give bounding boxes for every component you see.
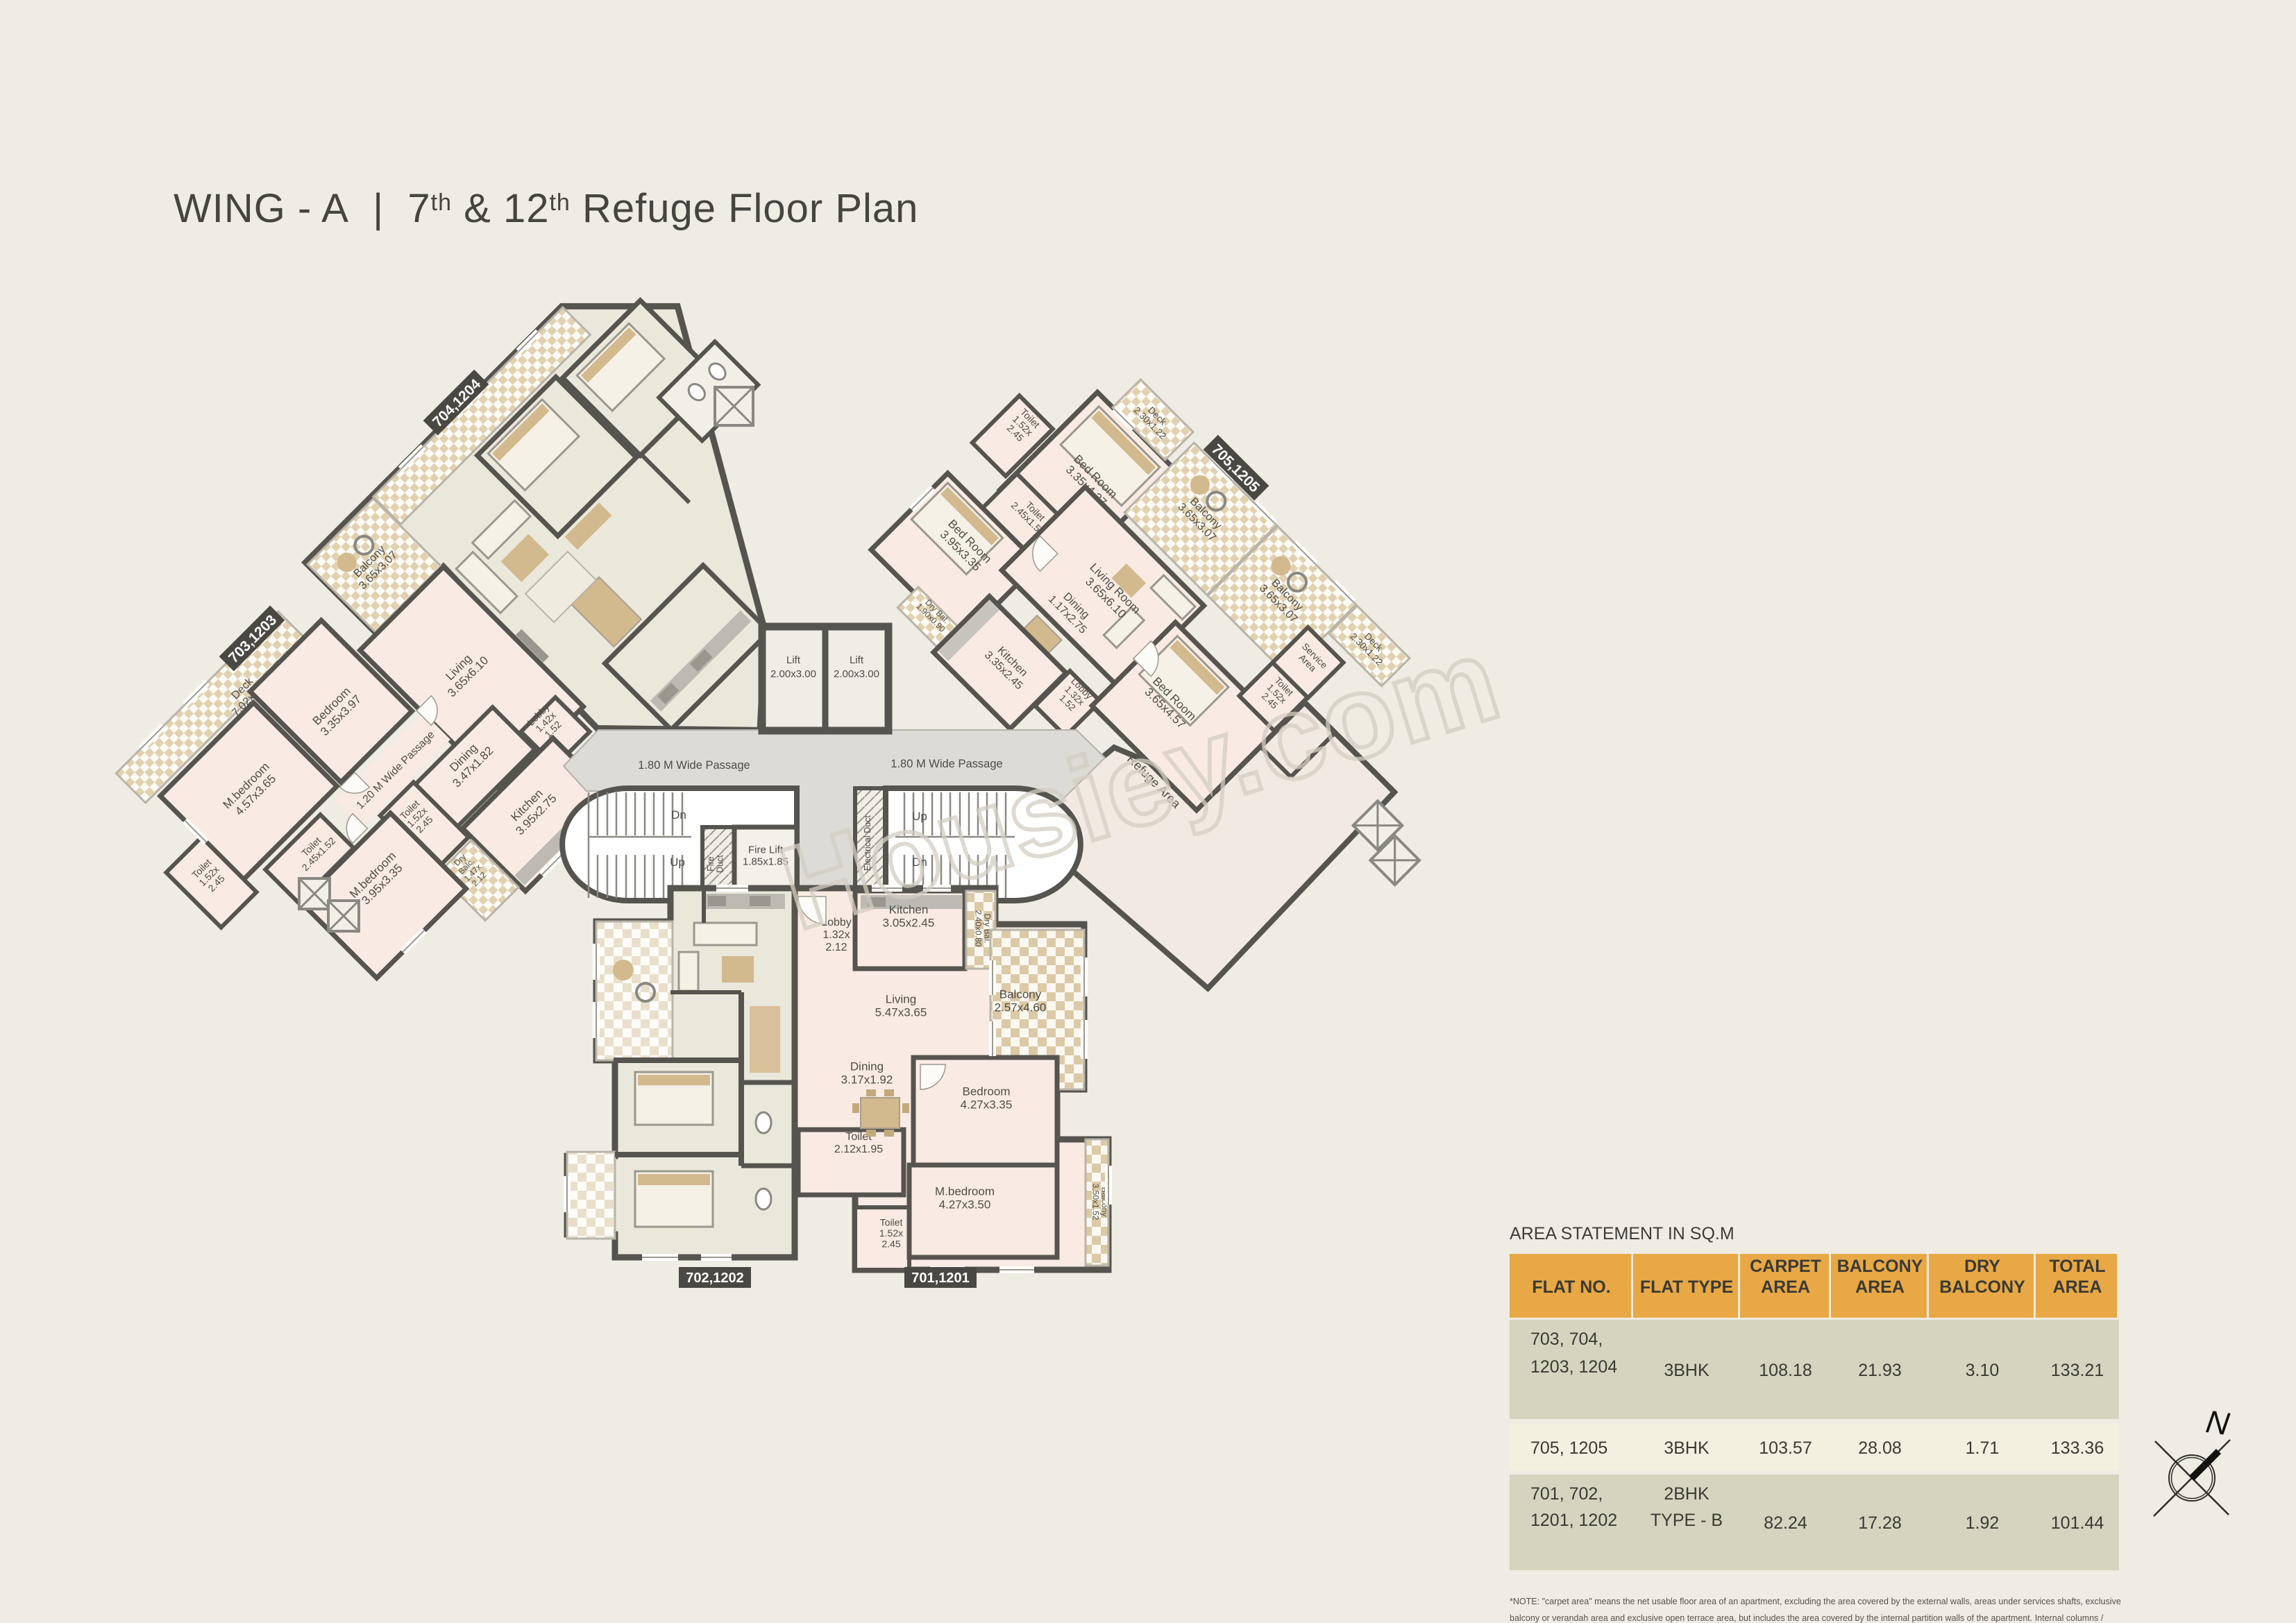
svg-text:28.08: 28.08 xyxy=(1858,1438,1902,1458)
svg-text:Dn: Dn xyxy=(671,808,686,822)
svg-text:FireDuct: FireDuct xyxy=(706,855,725,873)
svg-text:3BHK: 3BHK xyxy=(1664,1438,1710,1458)
svg-text:108.18: 108.18 xyxy=(1759,1361,1812,1380)
svg-text:FLAT TYPE: FLAT TYPE xyxy=(1640,1277,1733,1297)
svg-text:1.71: 1.71 xyxy=(1966,1438,2000,1458)
svg-text:WING - A | 7th & 12th Refuge: WING - A | 7th & 12th Refuge Floor Plan xyxy=(174,186,918,231)
svg-text:21.93: 21.93 xyxy=(1858,1361,1902,1380)
svg-text:82.24: 82.24 xyxy=(1764,1513,1807,1533)
svg-text:103.57: 103.57 xyxy=(1759,1438,1812,1458)
svg-text:701,1201: 701,1201 xyxy=(911,1271,969,1286)
svg-text:3BHK: 3BHK xyxy=(1664,1361,1710,1380)
svg-text:AREA STATEMENT IN SQ.M: AREA STATEMENT IN SQ.M xyxy=(1510,1224,1734,1243)
svg-text:1.80 M Wide Passage: 1.80 M Wide Passage xyxy=(638,759,750,772)
svg-text:Up: Up xyxy=(670,856,685,869)
svg-text:3.10: 3.10 xyxy=(1966,1361,2000,1380)
svg-text:M.bedroom4.27x3.50: M.bedroom4.27x3.50 xyxy=(935,1185,995,1212)
svg-text:133.36: 133.36 xyxy=(2051,1438,2104,1458)
svg-text:133.21: 133.21 xyxy=(2051,1361,2104,1380)
svg-text:702,1202: 702,1202 xyxy=(686,1271,743,1286)
svg-text:FLAT NO.: FLAT NO. xyxy=(1532,1277,1610,1297)
svg-text:17.28: 17.28 xyxy=(1858,1513,1902,1533)
svg-text:Toilet1.52x2.45: Toilet1.52x2.45 xyxy=(879,1217,903,1250)
svg-text:705, 1205: 705, 1205 xyxy=(1530,1438,1607,1458)
svg-text:Balcony2.57x4.60: Balcony2.57x4.60 xyxy=(995,988,1047,1014)
svg-text:101.44: 101.44 xyxy=(2051,1513,2104,1533)
svg-text:1.92: 1.92 xyxy=(1966,1513,2000,1533)
svg-text:Dry Bal.2.40x0.80: Dry Bal.2.40x0.80 xyxy=(974,910,993,947)
svg-text:Bedroom4.27x3.35: Bedroom4.27x3.35 xyxy=(961,1085,1013,1112)
